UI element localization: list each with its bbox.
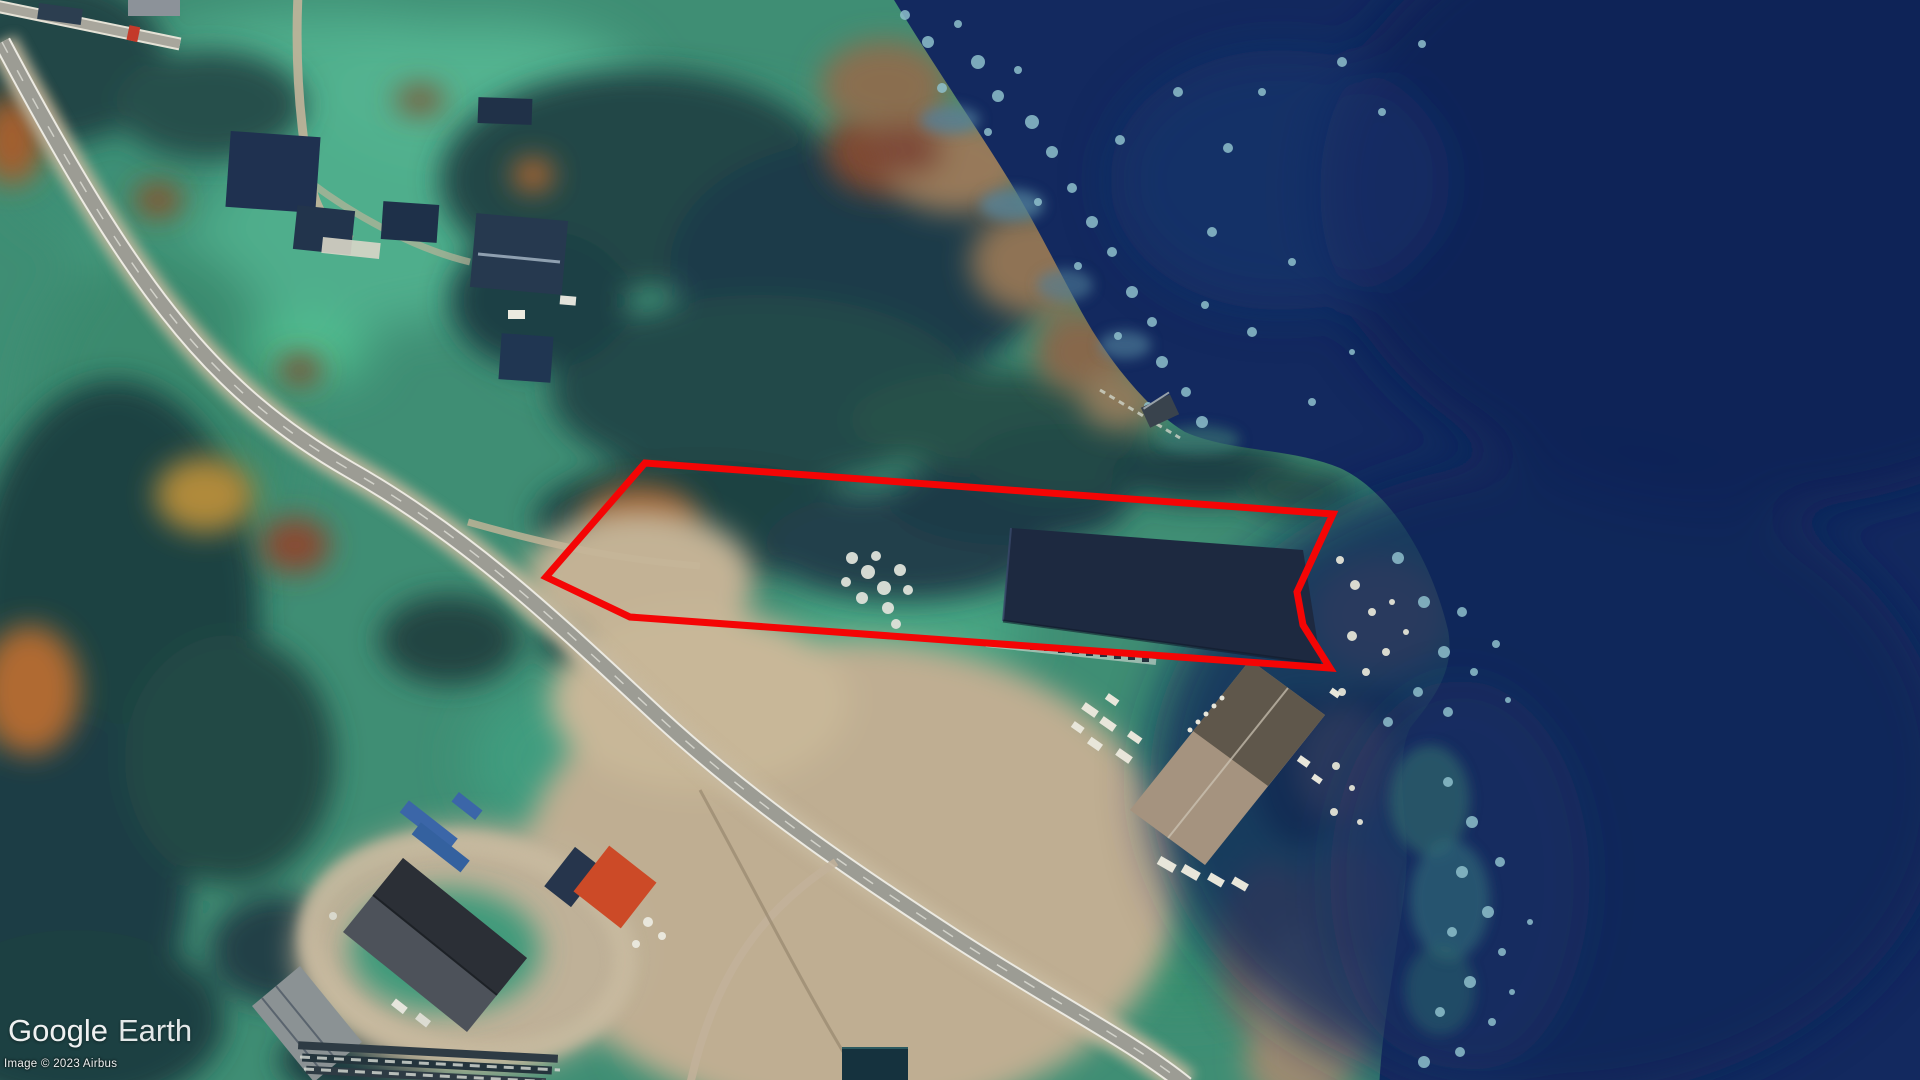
watermark-google: Google [8, 1013, 108, 1048]
outbuilding [128, 0, 180, 16]
house-roof [498, 333, 553, 383]
imagery-attribution: Image © 2023 Airbus [4, 1058, 117, 1070]
satellite-imagery [0, 0, 1920, 1080]
house-roof [225, 131, 320, 213]
house-roof [478, 97, 533, 125]
house-roof [381, 201, 440, 243]
google-earth-watermark: GoogleEarth [8, 1014, 192, 1048]
watermark-earth: Earth [118, 1013, 192, 1048]
dark-building-bottom [842, 1048, 908, 1080]
map-canvas[interactable]: GoogleEarth Image © 2023 Airbus [0, 0, 1920, 1080]
